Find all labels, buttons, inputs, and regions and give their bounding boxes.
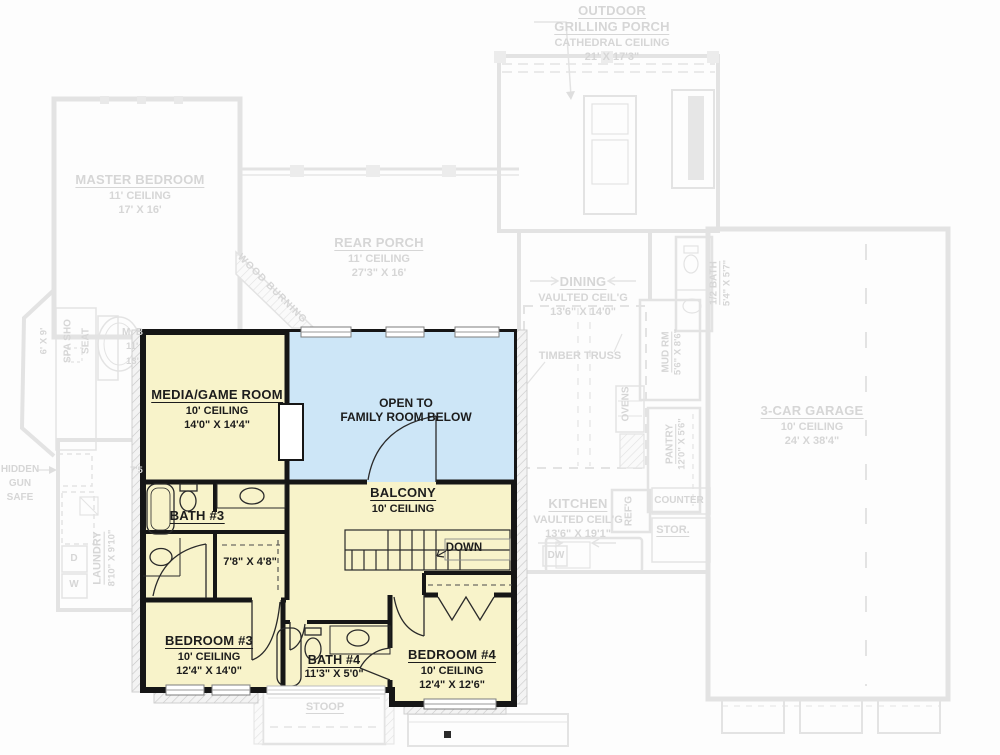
bedroom-4-dims: 12'4" X 12'6" <box>419 679 485 692</box>
bedroom-3-dims: 12'4" X 14'0" <box>176 665 242 678</box>
master-bedroom-label: MASTER BEDROOM <box>75 173 204 188</box>
gun-safe-box <box>58 454 92 486</box>
bath-4-label: BATH #4 <box>308 653 361 667</box>
dining-ceiling: VAULTED CEIL'G <box>538 292 628 305</box>
balcony-ceiling: 10' CEILING <box>372 503 435 516</box>
stairs-down-label: DOWN <box>446 542 482 555</box>
pantry-dims: 12'0" X 5'6" <box>678 418 689 470</box>
garage-dims: 24' X 38'4" <box>785 435 839 448</box>
dining-label: DINING <box>560 275 607 290</box>
master-bath-partial-2: 11' <box>126 342 138 353</box>
grilling-porch-label-2: GRILLING PORCH <box>554 20 669 35</box>
floor-plan-drawing <box>0 0 1000 755</box>
media-game-room-label: MEDIA/GAME ROOM <box>151 388 283 403</box>
timber-truss-label: TIMBER TRUSS <box>539 350 622 363</box>
grilling-porch-label-1: OUTDOOR <box>578 4 646 19</box>
seat-label: SEAT <box>80 328 92 354</box>
gun-safe-label-1: HIDDEN <box>1 464 39 476</box>
bedroom-4-ceiling: 10' CEILING <box>421 665 484 678</box>
grilling-porch-ceiling: CATHEDRAL CEILING <box>554 37 669 50</box>
bedroom-3-ceiling: 10' CEILING <box>178 651 241 664</box>
half-bath-toilet <box>684 255 698 273</box>
kitchen-ceiling: VAULTED CEIL'G <box>533 514 623 527</box>
master-bedroom-ceiling: 11' CEILING <box>109 190 171 203</box>
half-bath-label: 1/2 BATH <box>708 261 720 305</box>
garage-label: 3-CAR GARAGE <box>761 404 864 419</box>
spa-shower-dims: 6' X 9' <box>40 328 51 355</box>
media-game-room-dims: 14'0" X 14'4" <box>184 419 250 432</box>
refrigerator-label: REF'G <box>623 496 635 526</box>
master-bedroom-dims: 17' X 16' <box>118 204 161 217</box>
rear-porch-label: REAR PORCH <box>334 236 423 251</box>
kitchen-label: KITCHEN <box>548 497 607 512</box>
mud-room-dims: 5'6" X 8'6" <box>674 329 685 375</box>
washer-label: W <box>69 579 78 591</box>
half-bath-dims: 5'4" X 5'7" <box>723 260 734 306</box>
master-bath-partial-1: M. B <box>122 327 143 339</box>
laundry-dims: 8'10" X 9'10" <box>108 530 119 587</box>
spa-shower-label: SPA SHO <box>62 319 74 363</box>
partial-dimension: 7'5 <box>130 466 143 477</box>
open-to-below-label-1: OPEN TO <box>379 397 433 411</box>
bath-4-dims: 11'3" X 5'0" <box>304 668 363 681</box>
ovens-label: OVENS <box>620 386 632 421</box>
stoop-label: STOOP <box>306 701 344 714</box>
laundry-label: LAUNDRY <box>92 531 105 584</box>
media-game-room-ceiling: 10' CEILING <box>186 405 249 418</box>
grilling-porch-dims: 21' X 17'3" <box>585 51 639 64</box>
master-bath-partial-3: 13' <box>126 357 139 368</box>
kitchen-dims: 13'6" X 19'1" <box>545 528 611 541</box>
dining-dims: 13'6" X 14'0" <box>550 306 616 319</box>
bedroom-3-label: BEDROOM #3 <box>165 634 253 649</box>
rear-porch-dims: 27'3" X 16' <box>352 267 406 280</box>
floor-plan-page: OUTDOOR GRILLING PORCH CATHEDRAL CEILING… <box>0 0 1000 755</box>
bedroom-4-label: BEDROOM #4 <box>408 648 496 663</box>
dishwasher-label: DW <box>548 550 565 562</box>
mud-room-label: MUD RM <box>660 331 672 372</box>
balcony-label: BALCONY <box>370 486 436 501</box>
gun-safe-label-3: SAFE <box>7 492 34 504</box>
storage-label: STOR. <box>656 524 689 537</box>
open-to-below-label-2: FAMILY ROOM BELOW <box>340 411 471 425</box>
bath-3-label: BATH #3 <box>170 509 225 524</box>
garage-ceiling: 10' CEILING <box>781 421 844 434</box>
rear-porch-ceiling: 11' CEILING <box>348 253 410 266</box>
dryer-label: D <box>70 553 77 565</box>
counter-label: COUNTER <box>654 495 703 507</box>
pantry-label: PANTRY <box>664 424 676 464</box>
closet-3-dims: 7'8" X 4'8" <box>223 556 277 569</box>
pass-through-opening <box>279 404 303 460</box>
leader-arrowhead <box>566 91 575 100</box>
gun-safe-label-2: GUN <box>9 478 31 490</box>
